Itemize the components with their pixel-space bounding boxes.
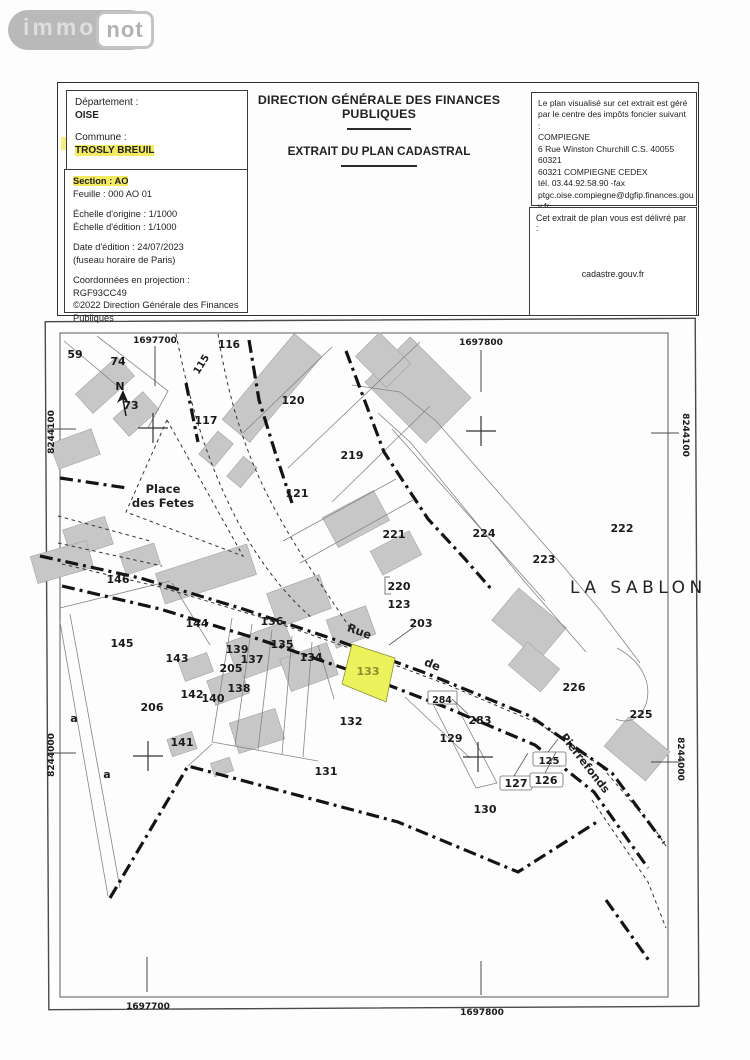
date-edition: Date d'édition : 24/07/2023: [73, 241, 239, 254]
parcel-label-135: 135: [271, 638, 294, 651]
parcel-label-143: 143: [166, 652, 189, 665]
grid-coordinate-1697700: 1697700: [133, 336, 177, 346]
centre-impots-line: par le centre des impôts foncier suivant…: [538, 109, 690, 132]
section-info-box: Section : AO Feuille : 000 AO 01 Échelle…: [64, 169, 248, 313]
parcel-label-137: 137: [241, 653, 264, 666]
immonot-logo: immo not: [8, 10, 150, 50]
parcel-label-140: 140: [202, 692, 225, 705]
parcel-label-145: 145: [111, 637, 134, 650]
parcel-label-120: 120: [282, 394, 305, 407]
grid-coordinate-1697700: 1697700: [126, 1002, 170, 1012]
logo-not-box: not: [96, 11, 154, 49]
parcel-label-141: 141: [171, 736, 194, 749]
parcel-label-115: 115: [192, 353, 212, 377]
fuseau-horaire: (fuseau horaire de Paris): [73, 254, 239, 267]
grid-coordinate-1697800: 1697800: [459, 338, 503, 348]
parcel-label-219: 219: [341, 449, 364, 462]
parcel-label-206: 206: [141, 701, 164, 714]
parcel-label-284: 284: [432, 695, 452, 706]
main-title: DIRECTION GÉNÉRALE DES FINANCES PUBLIQUE…: [230, 93, 528, 121]
parcel-label-116: 116: [218, 339, 240, 351]
grid-coordinate-8244000: 8244000: [47, 733, 57, 777]
parcel-label-123: 123: [388, 598, 411, 611]
parcel-label-138: 138: [228, 682, 251, 695]
centre-impots-line: 60321 COMPIEGNE CEDEX: [538, 167, 690, 178]
copyright-line2: Publiques: [73, 312, 239, 325]
street-label-la-sablon: LA SABLON: [570, 578, 707, 598]
parcel-label-129: 129: [440, 732, 463, 745]
commune-value: TROSLY BREUIL: [75, 145, 154, 156]
grid-coordinate-8244100: 8244100: [47, 410, 57, 454]
centre-impots-line: 6 Rue Winston Churchill C.S. 40055: [538, 144, 690, 155]
parcel-label-223: 223: [533, 553, 556, 566]
parcel-label-130: 130: [474, 803, 497, 816]
feuille-value: Feuille : 000 AO 01: [73, 188, 239, 201]
delivre-intro: Cet extrait de plan vous est délivré par…: [536, 213, 690, 233]
parcel-label-136: 136: [261, 615, 284, 628]
grid-coordinate-8244000: 8244000: [675, 737, 685, 781]
cadastre-site: cadastre.gouv.fr: [536, 269, 690, 279]
centre-impots-line: tél. 03.44.92.58.90 -fax: [538, 178, 690, 189]
parcel-label-126: 126: [535, 774, 558, 787]
parcel-label-146: 146: [107, 573, 130, 586]
parcel-label-144: 144: [186, 617, 209, 630]
coordonnees-projection: Coordonnées en projection : RGF93CC49: [73, 274, 239, 299]
parcel-label-73: 73: [123, 399, 138, 412]
parcel-label-220: 220: [388, 580, 411, 593]
parcel-label-121: 121: [286, 487, 309, 500]
street-label-de: de: [422, 655, 442, 674]
cadastral-extract-page: N 16977001697800169770016978008244100824…: [0, 0, 750, 1060]
logo-not-text: not: [106, 17, 143, 42]
parcel-label-221: 221: [383, 528, 406, 541]
section-value: Section : AO: [73, 176, 128, 186]
header-box: Département : OISE Commune : TROSLY BREU…: [57, 82, 699, 316]
echelle-edition: Échelle d'édition : 1/1000: [73, 221, 239, 234]
parcel-label-134: 134: [300, 651, 323, 664]
centre-impots-line: 60321: [538, 155, 690, 166]
parcel-label-133: 133: [357, 665, 380, 678]
subtitle: EXTRAIT DU PLAN CADASTRAL: [230, 144, 528, 158]
parcel-label-224: 224: [473, 527, 496, 540]
grid-cross-icon: [133, 741, 163, 771]
parcel-label-59: 59: [67, 348, 82, 361]
parcel-label-226: 226: [563, 681, 586, 694]
parcel-label-205: 205: [220, 662, 243, 675]
parcel-label-222: 222: [611, 522, 634, 535]
commune-label: Commune :: [75, 131, 239, 144]
street-label-place: Place: [146, 482, 181, 496]
parcel-label-203: 203: [410, 617, 433, 630]
logo-immo-text: immo: [23, 14, 96, 41]
centre-impots-line: Le plan visualisé sur cet extrait est gé…: [538, 98, 690, 109]
parcel-label-125: 125: [539, 756, 560, 767]
centre-impots-line: COMPIEGNE: [538, 132, 690, 143]
separator: [347, 128, 411, 130]
parcel-label-132: 132: [340, 715, 363, 728]
parcel-label-a: a: [103, 768, 110, 781]
parcel-label-127: 127: [505, 777, 528, 790]
delivrance-box: Cet extrait de plan vous est délivré par…: [529, 207, 697, 316]
parcel-label-225: 225: [630, 708, 653, 721]
separator: [341, 165, 417, 167]
grid-cross-icon: [466, 416, 496, 446]
street-label-des-fetes: des Fetes: [132, 496, 194, 510]
parcel-label-131: 131: [315, 765, 338, 778]
echelle-origine: Échelle d'origine : 1/1000: [73, 208, 239, 221]
departement-commune-box: Département : OISE Commune : TROSLY BREU…: [66, 90, 248, 177]
title-block: DIRECTION GÉNÉRALE DES FINANCES PUBLIQUE…: [230, 93, 528, 167]
centre-impots-box: Le plan visualisé sur cet extrait est gé…: [531, 92, 697, 206]
departement-value: OISE: [75, 109, 239, 122]
centre-impots-line: ptgc.oise.compiegne@dgfip.finances.gou: [538, 190, 690, 201]
parcel-label-74: 74: [110, 355, 126, 368]
grid-coordinate-1697800: 1697800: [460, 1008, 504, 1018]
grid-coordinate-8244100: 8244100: [680, 413, 690, 457]
parcel-label-117: 117: [195, 414, 218, 427]
parcel-label-a: a: [70, 712, 77, 725]
copyright-line1: ©2022 Direction Générale des Finances: [73, 299, 239, 312]
parcel-label-283: 283: [469, 714, 492, 727]
parcel-label-142: 142: [181, 688, 204, 701]
departement-label: Département :: [75, 96, 239, 109]
